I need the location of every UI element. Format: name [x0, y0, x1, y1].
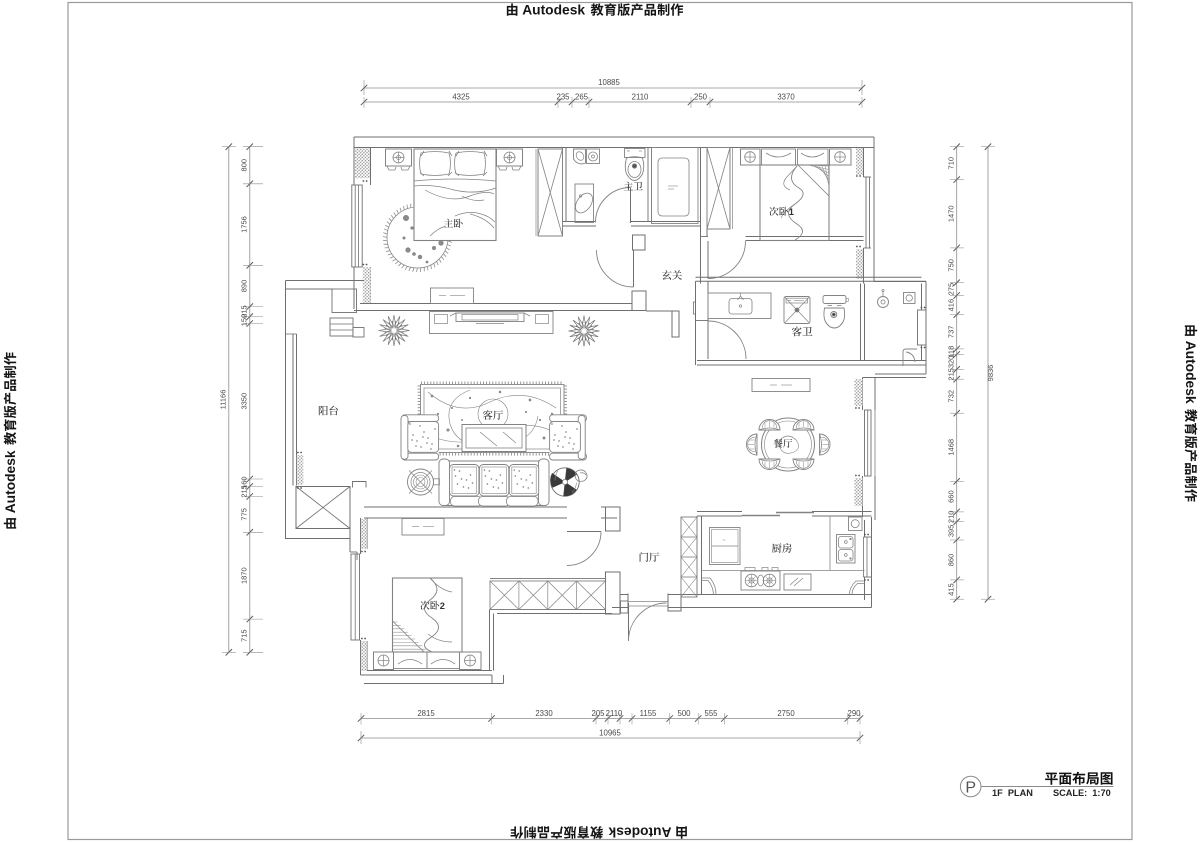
svg-text:415: 415 [947, 583, 956, 596]
svg-text:800: 800 [240, 159, 249, 172]
svg-text:4325: 4325 [452, 92, 470, 101]
svg-text:395: 395 [947, 525, 956, 538]
svg-text:3370: 3370 [777, 92, 795, 101]
svg-text:3350: 3350 [240, 393, 249, 410]
svg-text:860: 860 [947, 554, 956, 567]
svg-text:2: 2 [440, 601, 445, 611]
svg-text:P: P [965, 779, 976, 796]
svg-text:215: 215 [240, 485, 249, 498]
svg-text:10965: 10965 [599, 728, 621, 737]
svg-text:732: 732 [947, 390, 956, 403]
svg-text:1870: 1870 [240, 567, 249, 584]
svg-text:1756: 1756 [240, 216, 249, 233]
svg-text:320: 320 [947, 356, 956, 369]
svg-text:2750: 2750 [777, 709, 795, 718]
svg-text:275: 275 [947, 283, 956, 296]
svg-text:416: 416 [947, 299, 956, 312]
svg-text:11166: 11166 [219, 390, 228, 410]
svg-text:290: 290 [847, 709, 861, 718]
svg-text:2330: 2330 [535, 709, 553, 718]
svg-text:710: 710 [947, 157, 956, 170]
svg-text:10885: 10885 [598, 78, 620, 87]
svg-text:~: ~ [722, 538, 726, 544]
svg-text:215: 215 [947, 368, 956, 381]
svg-text:150: 150 [240, 314, 249, 327]
svg-text:Autodesk: Autodesk [608, 825, 671, 840]
svg-text:Autodesk: Autodesk [1183, 341, 1198, 404]
svg-text:1468: 1468 [947, 439, 956, 456]
svg-text:660: 660 [947, 490, 956, 503]
svg-text:775: 775 [240, 508, 249, 521]
svg-text:250: 250 [694, 92, 708, 101]
svg-text:2110: 2110 [606, 709, 623, 718]
svg-text:555: 555 [704, 709, 718, 718]
svg-text:Autodesk: Autodesk [522, 3, 585, 18]
svg-text:9836: 9836 [986, 365, 995, 382]
svg-text:2110: 2110 [632, 92, 649, 101]
svg-text:500: 500 [677, 709, 691, 718]
svg-text:1F PLAN: 1F PLAN [992, 788, 1033, 798]
svg-text:750: 750 [947, 259, 956, 272]
svg-text:1: 1 [789, 207, 794, 217]
svg-text:SCALE: 1:70: SCALE: 1:70 [1053, 788, 1111, 798]
svg-text:210: 210 [947, 511, 956, 524]
svg-text:890: 890 [240, 280, 249, 293]
svg-text:235: 235 [556, 92, 570, 101]
svg-text:265: 265 [575, 92, 589, 101]
svg-text:715: 715 [240, 629, 249, 642]
svg-text:205: 205 [591, 709, 605, 718]
svg-text:1470: 1470 [947, 205, 956, 222]
svg-text:737: 737 [947, 326, 956, 339]
svg-text:Autodesk: Autodesk [3, 450, 18, 513]
svg-text:2815: 2815 [417, 709, 435, 718]
svg-text:1155: 1155 [640, 709, 657, 718]
